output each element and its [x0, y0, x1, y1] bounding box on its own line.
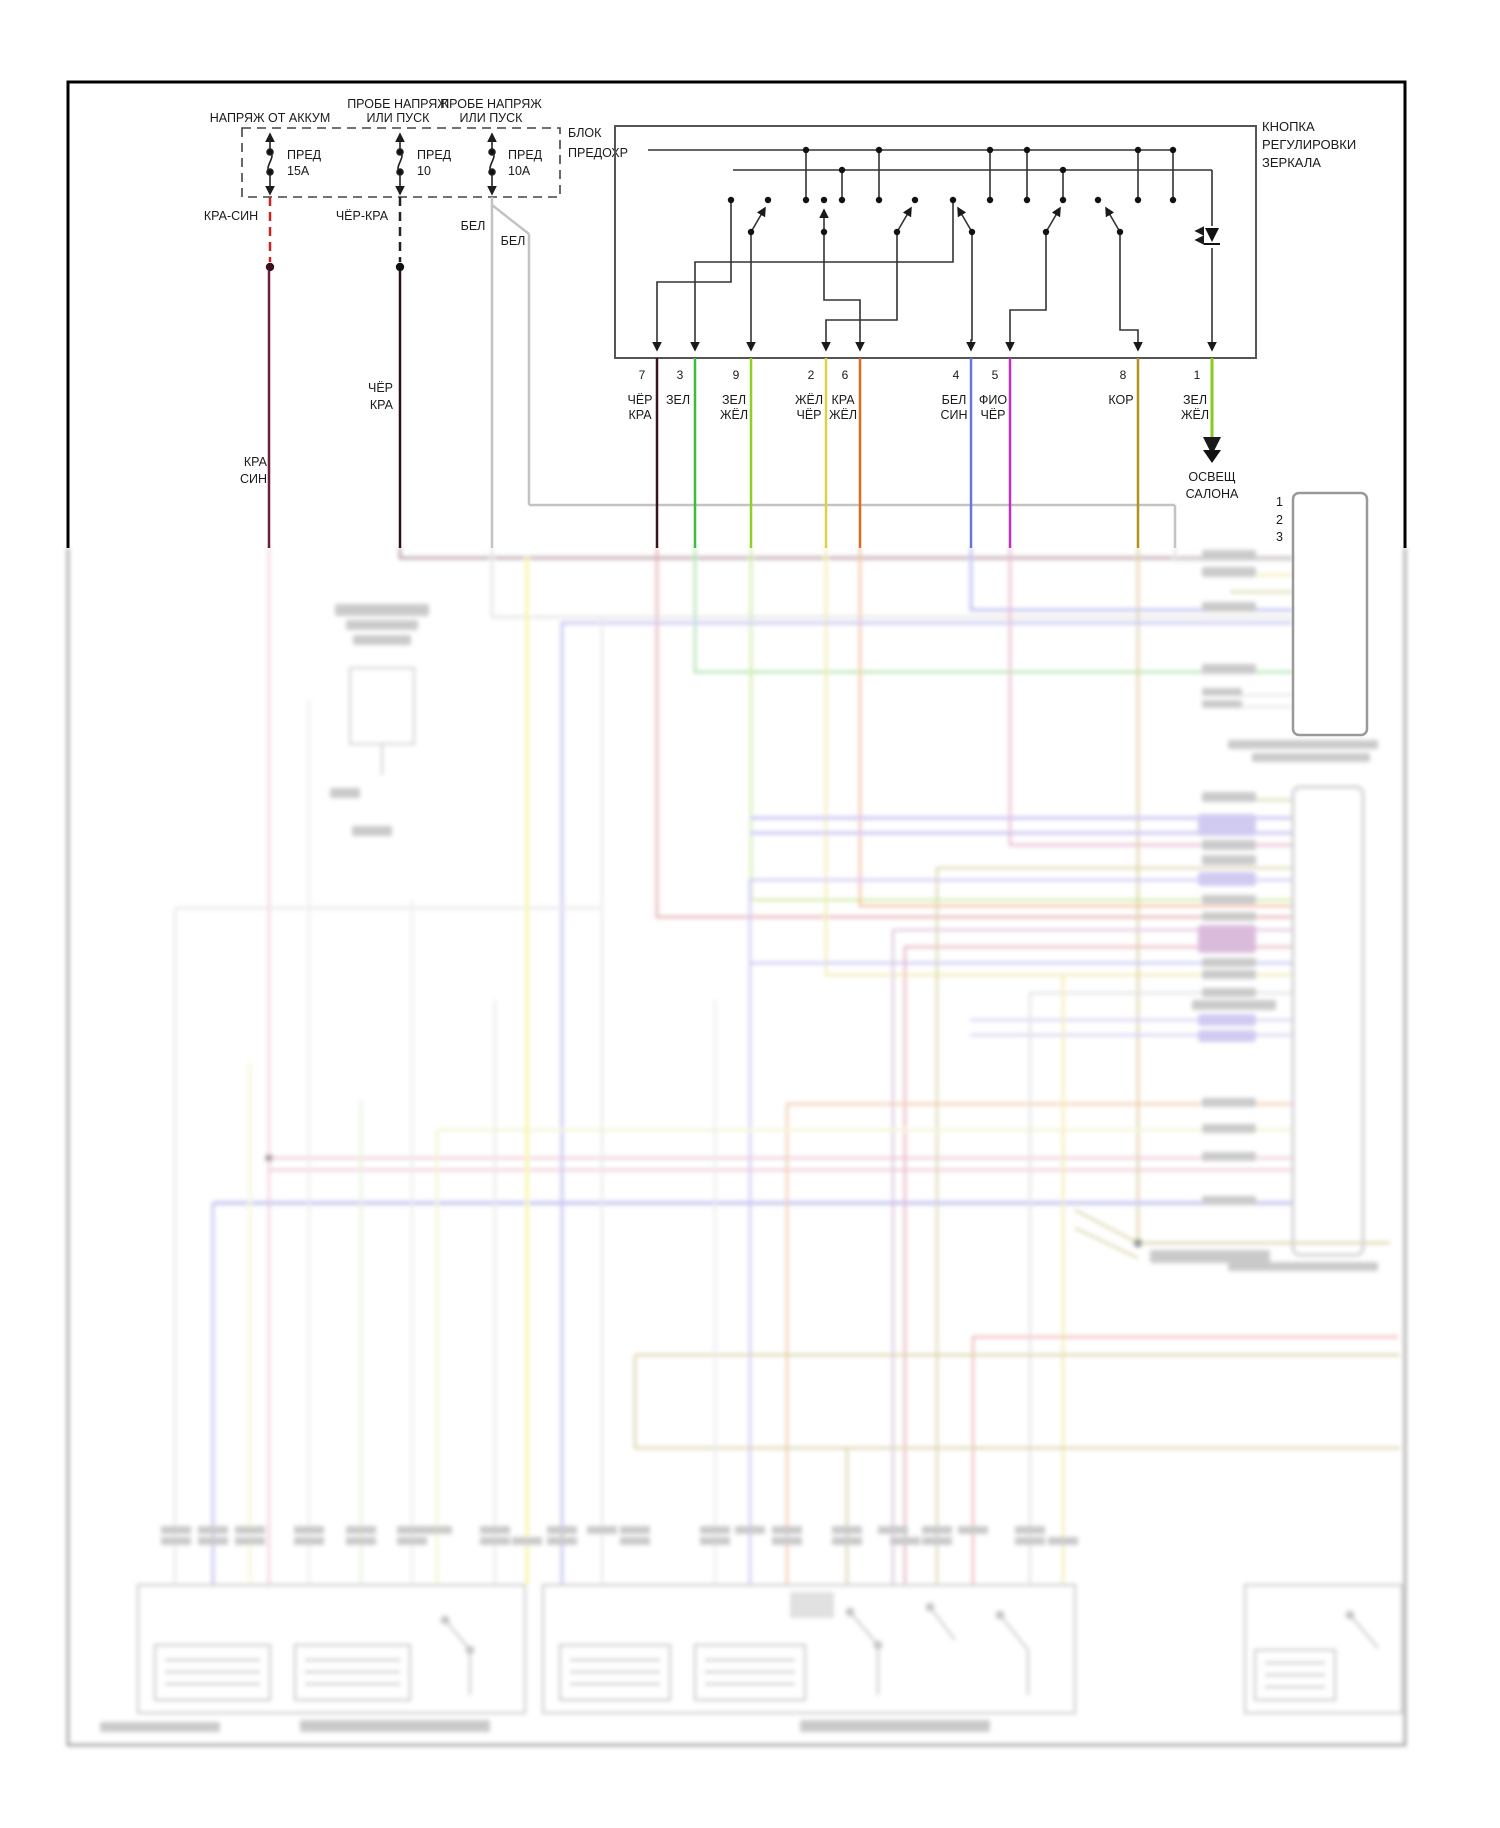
pin-number: 8 — [1120, 368, 1127, 382]
feed-label-run2a: ПРОБЕ НАПРЯЖ — [440, 97, 542, 111]
pin-color: ЖЁЛ — [829, 408, 857, 422]
pin-color: ЗЕЛ — [722, 393, 746, 407]
feed-wires: КРА-СИН КРА СИН ЧЁР-КРА ЧЁР КРА БЕЛ БЕЛ — [204, 197, 1175, 548]
switch-internal-wiring — [648, 150, 1212, 350]
pin-color: ЧЁР — [980, 408, 1005, 422]
wiring-diagram-canvas: БЛОК ПРЕДОХР НАПРЯЖ ОТ АККУМ ПРОБЕ НАПРЯ… — [0, 0, 1500, 1828]
fuse-15a-symbol — [267, 134, 273, 194]
wire-label-cher-kra: ЧЁР-КРА — [336, 209, 389, 223]
wire-label-bel2: БЕЛ — [501, 234, 526, 248]
pin-color: ЧЁР — [796, 408, 821, 422]
pin-number: 6 — [842, 368, 849, 382]
fuse-15a-amp: 15А — [287, 164, 310, 178]
connector-pin-1: 1 — [1276, 495, 1283, 509]
feed-label-run2b: ИЛИ ПУСК — [460, 111, 524, 125]
fuse-block-label-2: ПРЕДОХР — [568, 146, 628, 160]
cabin-light-label-1: ОСВЕЩ — [1188, 470, 1235, 484]
pin-color: ЗЕЛ — [1183, 393, 1207, 407]
fuse-10a-amp: 10А — [508, 164, 531, 178]
switch-pins: 7 ЧЁР КРА 3 ЗЕЛ 9 ЗЕЛ ЖЁЛ 2 ЖЁЛ ЧЁР 6 КР… — [627, 358, 1212, 548]
switch-title-1: КНОПКА — [1262, 119, 1315, 134]
wire-label-kra-sin: КРА-СИН — [204, 209, 258, 223]
door-connector: 1 2 3 — [1276, 493, 1367, 735]
pin-color: ЖЁЛ — [720, 408, 748, 422]
fuse-15a-name: ПРЕД — [287, 148, 322, 162]
mirror-assembly-left — [138, 1585, 525, 1713]
mirror-assembly-right — [543, 1585, 1075, 1713]
mirror-assembly-partial — [1245, 1585, 1402, 1713]
fuse-10-name: ПРЕД — [417, 148, 452, 162]
fuse-block-label-1: БЛОК — [568, 126, 602, 140]
mirror-switch-block: КНОПКА РЕГУЛИРОВКИ ЗЕРКАЛА — [615, 119, 1356, 358]
connector-pin-3: 3 — [1276, 530, 1283, 544]
pin-color: СИН — [940, 408, 967, 422]
wire-label-bel1: БЕЛ — [461, 219, 486, 233]
feed-label-run1b: ИЛИ ПУСК — [367, 111, 431, 125]
fuse-10a-name: ПРЕД — [508, 148, 543, 162]
wire-label-kra2b: СИН — [240, 472, 267, 486]
diode-symbol — [1204, 228, 1220, 244]
feed-label-run1a: ПРОБЕ НАПРЯЖ — [347, 97, 449, 111]
pin-color: ЖЁЛ — [1181, 408, 1209, 422]
switch-junction-dots — [728, 147, 1176, 235]
pin-color: КРА — [628, 408, 652, 422]
switch-title-2: РЕГУЛИРОВКИ — [1262, 137, 1356, 152]
wire-label-cher2a: ЧЁР — [368, 381, 393, 395]
cabin-light-output: ОСВЕЩ САЛОНА — [1186, 446, 1239, 501]
fuse-block: БЛОК ПРЕДОХР НАПРЯЖ ОТ АККУМ ПРОБЕ НАПРЯ… — [210, 97, 628, 197]
pin-color: ФИО — [979, 393, 1007, 407]
pin-color: КОР — [1108, 393, 1133, 407]
pin-number: 4 — [953, 368, 960, 382]
fuse-10-symbol — [397, 134, 403, 194]
pin-color: ЗЕЛ — [666, 393, 690, 407]
fuse-10a-symbol — [489, 134, 495, 194]
pin-number: 7 — [639, 368, 646, 382]
pin-number: 5 — [992, 368, 999, 382]
wire-label-cher2b: КРА — [370, 398, 394, 412]
switch-title-3: ЗЕРКАЛА — [1262, 155, 1321, 170]
pin-color: КРА — [831, 393, 855, 407]
fuse-10-amp: 10 — [417, 164, 431, 178]
faded-lower-circuit — [68, 548, 1405, 1745]
wiring-diagram-page: БЛОК ПРЕДОХР НАПРЯЖ ОТ АККУМ ПРОБЕ НАПРЯ… — [0, 0, 1500, 1828]
pin-color: ЧЁР — [627, 393, 652, 407]
pin-number: 2 — [808, 368, 815, 382]
connector-pin-2: 2 — [1276, 513, 1283, 527]
pin-color: БЕЛ — [942, 393, 967, 407]
pin-number: 9 — [733, 368, 740, 382]
feed-label-battery: НАПРЯЖ ОТ АККУМ — [210, 111, 331, 125]
pin-color: ЖЁЛ — [795, 393, 823, 407]
wire-label-kra2a: КРА — [244, 455, 268, 469]
pin-number: 3 — [677, 368, 684, 382]
pin-number: 1 — [1194, 368, 1201, 382]
cabin-light-label-2: САЛОНА — [1186, 487, 1239, 501]
